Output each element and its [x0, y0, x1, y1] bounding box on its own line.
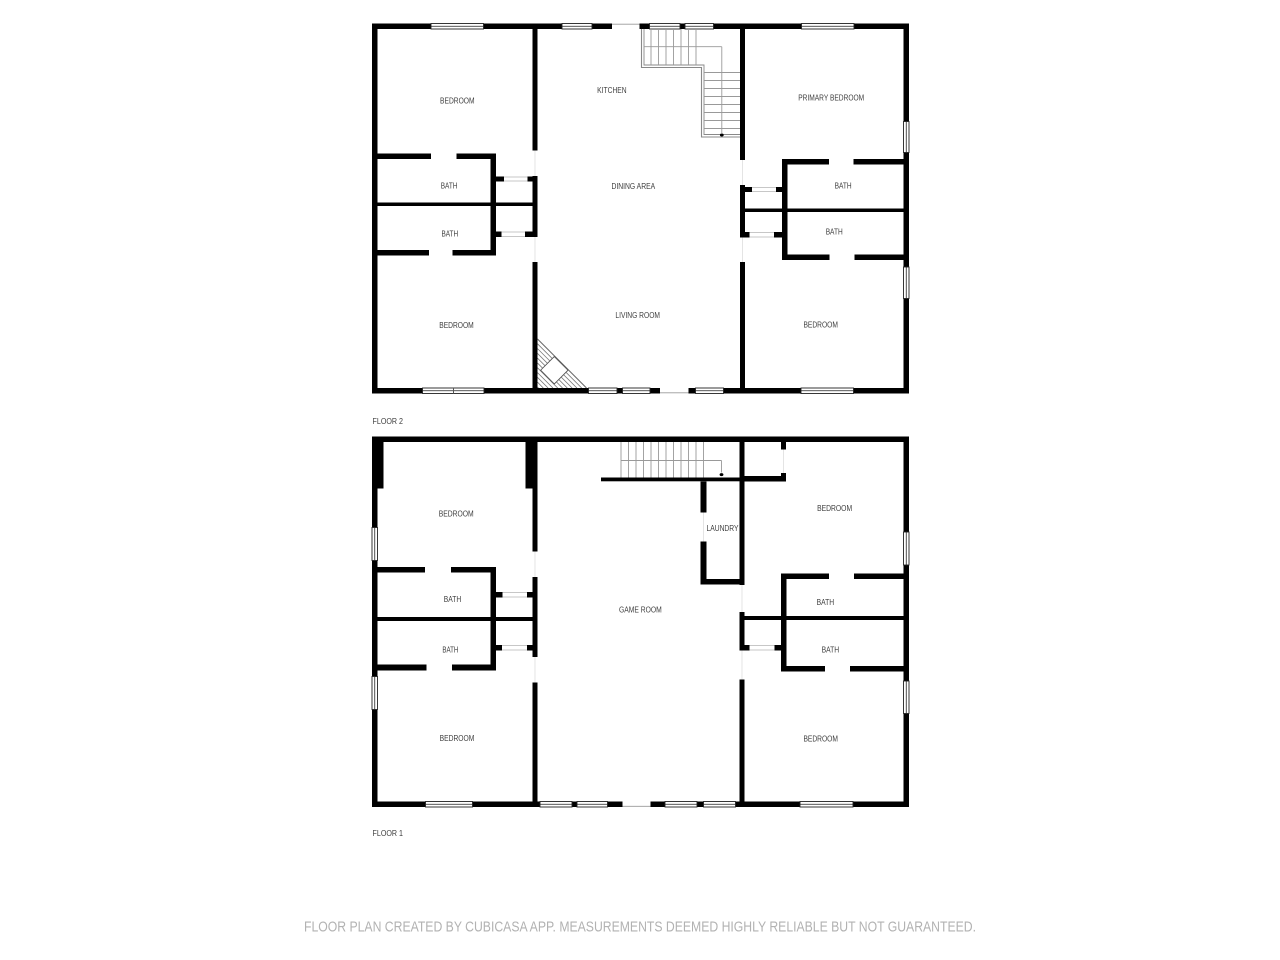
svg-text:KITCHEN: KITCHEN	[597, 86, 627, 95]
svg-text:LIVING ROOM: LIVING ROOM	[615, 311, 660, 320]
svg-text:BEDROOM: BEDROOM	[817, 504, 852, 513]
svg-text:BEDROOM: BEDROOM	[439, 321, 474, 330]
svg-text:FLOOR 2: FLOOR 2	[373, 416, 404, 426]
svg-text:FLOOR 1: FLOOR 1	[373, 828, 404, 838]
svg-text:PRIMARY BEDROOM: PRIMARY BEDROOM	[798, 94, 864, 103]
svg-text:BATH: BATH	[826, 228, 843, 237]
svg-text:BATH: BATH	[444, 595, 461, 604]
svg-text:BATH: BATH	[442, 646, 458, 655]
svg-text:DINING AREA: DINING AREA	[611, 182, 655, 191]
svg-text:FLOOR PLAN CREATED BY CUBICASA: FLOOR PLAN CREATED BY CUBICASA APP. MEAS…	[304, 918, 976, 935]
svg-text:BEDROOM: BEDROOM	[440, 734, 475, 743]
svg-text:BATH: BATH	[441, 230, 458, 239]
svg-text:BATH: BATH	[441, 182, 458, 191]
svg-text:GAME ROOM: GAME ROOM	[619, 606, 662, 615]
svg-text:BEDROOM: BEDROOM	[440, 96, 475, 105]
svg-text:BEDROOM: BEDROOM	[439, 510, 474, 519]
svg-text:BATH: BATH	[835, 181, 852, 190]
svg-text:BATH: BATH	[817, 598, 835, 607]
svg-text:BEDROOM: BEDROOM	[803, 321, 838, 330]
svg-text:BATH: BATH	[822, 646, 840, 655]
svg-text:LAUNDRY: LAUNDRY	[707, 524, 739, 533]
svg-text:BEDROOM: BEDROOM	[803, 735, 838, 744]
